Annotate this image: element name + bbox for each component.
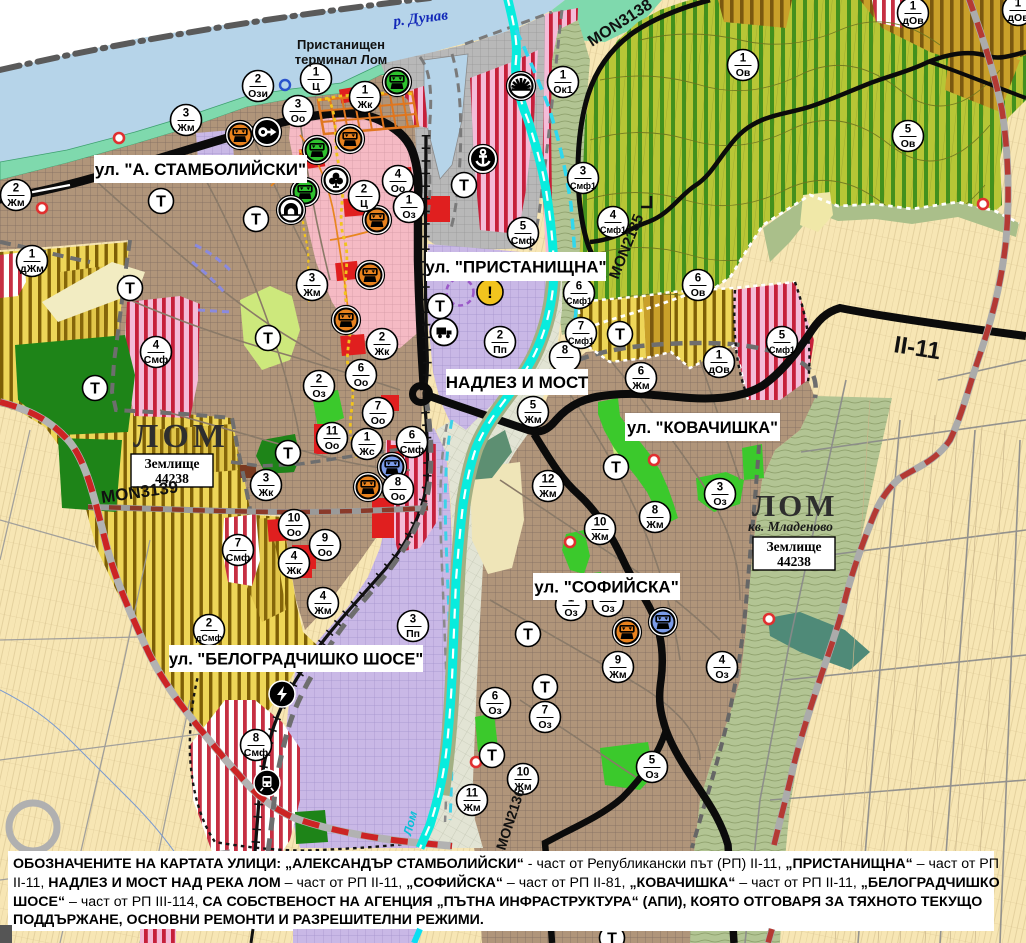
svg-text:Т: Т bbox=[251, 212, 261, 229]
svg-text:Жк: Жк bbox=[286, 565, 302, 577]
svg-text:Т: Т bbox=[90, 381, 100, 398]
svg-text:5: 5 bbox=[905, 124, 912, 136]
svg-text:Т: Т bbox=[487, 748, 497, 765]
svg-text:1: 1 bbox=[364, 432, 371, 444]
svg-text:44238: 44238 bbox=[777, 554, 811, 569]
svg-text:ул. "А. СТАМБОЛИЙСКИ": ул. "А. СТАМБОЛИЙСКИ" bbox=[95, 160, 306, 179]
svg-text:Ц: Ц bbox=[312, 81, 320, 93]
svg-text:1: 1 bbox=[29, 249, 36, 261]
svg-text:1: 1 bbox=[910, 1, 917, 13]
svg-text:Ок1: Ок1 bbox=[553, 84, 572, 96]
svg-text:Оо: Оо bbox=[391, 491, 406, 503]
svg-text:!: ! bbox=[487, 283, 493, 302]
svg-text:4: 4 bbox=[153, 340, 160, 352]
svg-text:Смф1: Смф1 bbox=[566, 296, 592, 306]
svg-text:дЖм: дЖм bbox=[20, 263, 44, 275]
svg-text:Смф: Смф bbox=[400, 444, 424, 456]
svg-text:12: 12 bbox=[542, 474, 555, 486]
svg-text:Смф: Смф bbox=[144, 354, 168, 366]
svg-text:5: 5 bbox=[649, 755, 656, 767]
svg-text:Жм: Жм bbox=[608, 669, 626, 681]
svg-text:НАДЛЕЗ И МОСТ: НАДЛЕЗ И МОСТ bbox=[446, 373, 589, 392]
svg-text:Смф1: Смф1 bbox=[769, 345, 795, 355]
svg-text:Смф: Смф bbox=[511, 235, 535, 247]
svg-text:Жс: Жс bbox=[358, 446, 374, 458]
svg-text:Жм: Жм bbox=[523, 414, 541, 426]
svg-text:Ц: Ц bbox=[360, 198, 368, 210]
svg-text:Оо: Оо bbox=[354, 377, 369, 389]
svg-text:6: 6 bbox=[695, 273, 701, 285]
svg-text:Оо: Оо bbox=[371, 415, 386, 427]
svg-text:Т: Т bbox=[435, 299, 445, 316]
svg-text:1: 1 bbox=[1015, 0, 1022, 10]
svg-text:4: 4 bbox=[610, 210, 617, 222]
svg-text:4: 4 bbox=[395, 169, 402, 181]
svg-text:2: 2 bbox=[206, 618, 212, 630]
svg-text:8: 8 bbox=[652, 505, 659, 517]
svg-text:Землище: Землище bbox=[144, 456, 199, 471]
svg-text:Жм: Жм bbox=[313, 605, 331, 617]
svg-text:4: 4 bbox=[320, 591, 327, 603]
svg-text:Оо: Оо bbox=[287, 527, 302, 539]
svg-text:Оз: Оз bbox=[564, 607, 577, 619]
svg-text:терминал Лом: терминал Лом bbox=[295, 52, 387, 67]
svg-text:1: 1 bbox=[313, 67, 320, 79]
svg-text:10: 10 bbox=[288, 513, 301, 525]
svg-text:Т: Т bbox=[263, 331, 273, 348]
svg-text:Смф1: Смф1 bbox=[570, 181, 596, 191]
svg-text:Смф: Смф bbox=[244, 747, 268, 759]
svg-text:3: 3 bbox=[295, 99, 301, 111]
svg-text:2: 2 bbox=[13, 183, 19, 195]
svg-text:дОв: дОв bbox=[1007, 12, 1026, 24]
svg-text:Пп: Пп bbox=[406, 628, 420, 640]
svg-text:Т: Т bbox=[611, 460, 621, 477]
svg-text:кв. Младеново: кв. Младеново bbox=[748, 519, 833, 534]
svg-text:Оо: Оо bbox=[318, 547, 333, 559]
svg-text:2: 2 bbox=[361, 184, 367, 196]
svg-text:5: 5 bbox=[520, 221, 527, 233]
svg-text:10: 10 bbox=[594, 517, 607, 529]
svg-text:8: 8 bbox=[395, 477, 402, 489]
svg-text:Жм: Жм bbox=[176, 122, 194, 134]
svg-text:5: 5 bbox=[779, 330, 786, 342]
svg-text:8: 8 bbox=[562, 345, 569, 357]
svg-text:11: 11 bbox=[466, 788, 479, 800]
svg-text:ул. "ПРИСТАНИЩНА": ул. "ПРИСТАНИЩНА" bbox=[425, 257, 606, 276]
svg-text:Т: Т bbox=[607, 931, 617, 943]
svg-text:дОв: дОв bbox=[902, 15, 924, 27]
svg-text:Оз: Оз bbox=[601, 603, 614, 615]
svg-text:Оз: Оз bbox=[713, 496, 726, 508]
svg-text:дСмф: дСмф bbox=[196, 633, 223, 643]
svg-text:II-11, НАДЛЕЗ И МОСТ НАД РЕКА: II-11, НАДЛЕЗ И МОСТ НАД РЕКА ЛОМ – част… bbox=[13, 873, 1000, 891]
svg-text:9: 9 bbox=[615, 655, 621, 667]
svg-text:2: 2 bbox=[497, 330, 503, 342]
svg-text:Смф: Смф bbox=[226, 552, 250, 564]
svg-text:Оз: Оз bbox=[645, 769, 658, 781]
svg-text:Т: Т bbox=[156, 194, 166, 211]
svg-text:Землище: Землище bbox=[766, 539, 821, 554]
svg-text:Жм: Жм bbox=[462, 802, 480, 814]
svg-text:Ози: Ози bbox=[248, 88, 268, 100]
svg-text:дОв: дОв bbox=[708, 364, 730, 376]
svg-text:Т: Т bbox=[523, 627, 533, 644]
svg-text:3: 3 bbox=[580, 166, 586, 178]
svg-text:3: 3 bbox=[717, 482, 723, 494]
svg-text:7: 7 bbox=[542, 705, 548, 717]
svg-text:2: 2 bbox=[316, 374, 322, 386]
svg-text:5: 5 bbox=[530, 400, 537, 412]
svg-text:7: 7 bbox=[375, 401, 381, 413]
svg-text:Жм: Жм bbox=[645, 519, 663, 531]
svg-text:Жм: Жм bbox=[538, 488, 556, 500]
svg-text:ЛОМ: ЛОМ bbox=[752, 488, 837, 523]
svg-text:Жк: Жк bbox=[357, 99, 373, 111]
svg-text:Жм: Жм bbox=[590, 531, 608, 543]
svg-text:Оо: Оо bbox=[325, 440, 340, 452]
svg-text:Смф1: Смф1 bbox=[568, 336, 594, 346]
svg-text:Оз: Оз bbox=[715, 669, 728, 681]
svg-text:8: 8 bbox=[253, 733, 260, 745]
svg-text:Пп: Пп bbox=[493, 344, 507, 356]
svg-text:Т: Т bbox=[615, 327, 625, 344]
svg-text:4: 4 bbox=[291, 551, 298, 563]
svg-text:ШОСЕ“ – част от РП III-114, СА: ШОСЕ“ – част от РП III-114, СА СОБСТВЕНО… bbox=[13, 894, 982, 910]
svg-text:1: 1 bbox=[716, 350, 723, 362]
svg-text:2: 2 bbox=[255, 74, 261, 86]
svg-text:2: 2 bbox=[379, 332, 385, 344]
svg-text:7: 7 bbox=[578, 321, 584, 333]
svg-text:Ов: Ов bbox=[901, 138, 916, 150]
svg-text:3: 3 bbox=[309, 273, 315, 285]
svg-text:6: 6 bbox=[409, 430, 415, 442]
svg-text:9: 9 bbox=[322, 533, 328, 545]
svg-text:11: 11 bbox=[326, 426, 339, 438]
svg-text:1: 1 bbox=[560, 70, 567, 82]
svg-text:3: 3 bbox=[410, 614, 416, 626]
svg-text:ул. "СОФИЙСКА": ул. "СОФИЙСКА" bbox=[534, 577, 679, 596]
svg-text:Жм: Жм bbox=[6, 197, 24, 209]
svg-text:Пристанищен: Пристанищен bbox=[297, 37, 385, 52]
svg-text:6: 6 bbox=[492, 691, 498, 703]
svg-text:10: 10 bbox=[517, 767, 530, 779]
svg-text:Т: Т bbox=[540, 680, 550, 697]
svg-text:7: 7 bbox=[235, 538, 241, 550]
svg-text:6: 6 bbox=[638, 366, 644, 378]
svg-text:3: 3 bbox=[183, 108, 189, 120]
svg-text:6: 6 bbox=[576, 281, 582, 293]
svg-text:ул. "КОВАЧИШКА": ул. "КОВАЧИШКА" bbox=[627, 419, 778, 437]
svg-text:ОБОЗНАЧЕНИТЕ НА КАРТАТА УЛИЦИ:: ОБОЗНАЧЕНИТЕ НА КАРТАТА УЛИЦИ: „АЛЕКСАНД… bbox=[13, 854, 999, 872]
svg-text:Жк: Жк bbox=[374, 346, 390, 358]
svg-text:Оз: Оз bbox=[402, 209, 415, 221]
svg-text:3: 3 bbox=[263, 473, 269, 485]
svg-text:4: 4 bbox=[719, 655, 726, 667]
svg-text:Жм: Жм bbox=[302, 287, 320, 299]
svg-text:Т: Т bbox=[125, 281, 135, 298]
svg-text:Ов: Ов bbox=[736, 67, 751, 79]
svg-text:Оз: Оз bbox=[488, 705, 501, 717]
svg-text:ул. "БЕЛОГРАДЧИШКО ШОСЕ": ул. "БЕЛОГРАДЧИШКО ШОСЕ" bbox=[169, 650, 423, 668]
svg-text:ЛОМ: ЛОМ bbox=[133, 418, 229, 455]
svg-text:Т: Т bbox=[459, 178, 469, 195]
svg-text:6: 6 bbox=[358, 363, 364, 375]
svg-text:Оз: Оз bbox=[312, 388, 325, 400]
svg-text:ПОДДЪРЖАНЕ, ОСНОВНИ РЕМОНТИ И: ПОДДЪРЖАНЕ, ОСНОВНИ РЕМОНТИ И РАЗРЕШИТЕЛ… bbox=[13, 912, 484, 928]
svg-text:Оо: Оо bbox=[291, 113, 306, 125]
svg-text:Ов: Ов bbox=[691, 287, 706, 299]
svg-text:1: 1 bbox=[362, 85, 369, 97]
svg-text:Т: Т bbox=[283, 446, 293, 463]
svg-text:1: 1 bbox=[406, 195, 413, 207]
svg-text:Оз: Оз bbox=[538, 719, 551, 731]
svg-text:Жк: Жк bbox=[258, 487, 274, 499]
svg-text:Жм: Жм bbox=[631, 380, 649, 392]
svg-text:1: 1 bbox=[740, 53, 747, 65]
